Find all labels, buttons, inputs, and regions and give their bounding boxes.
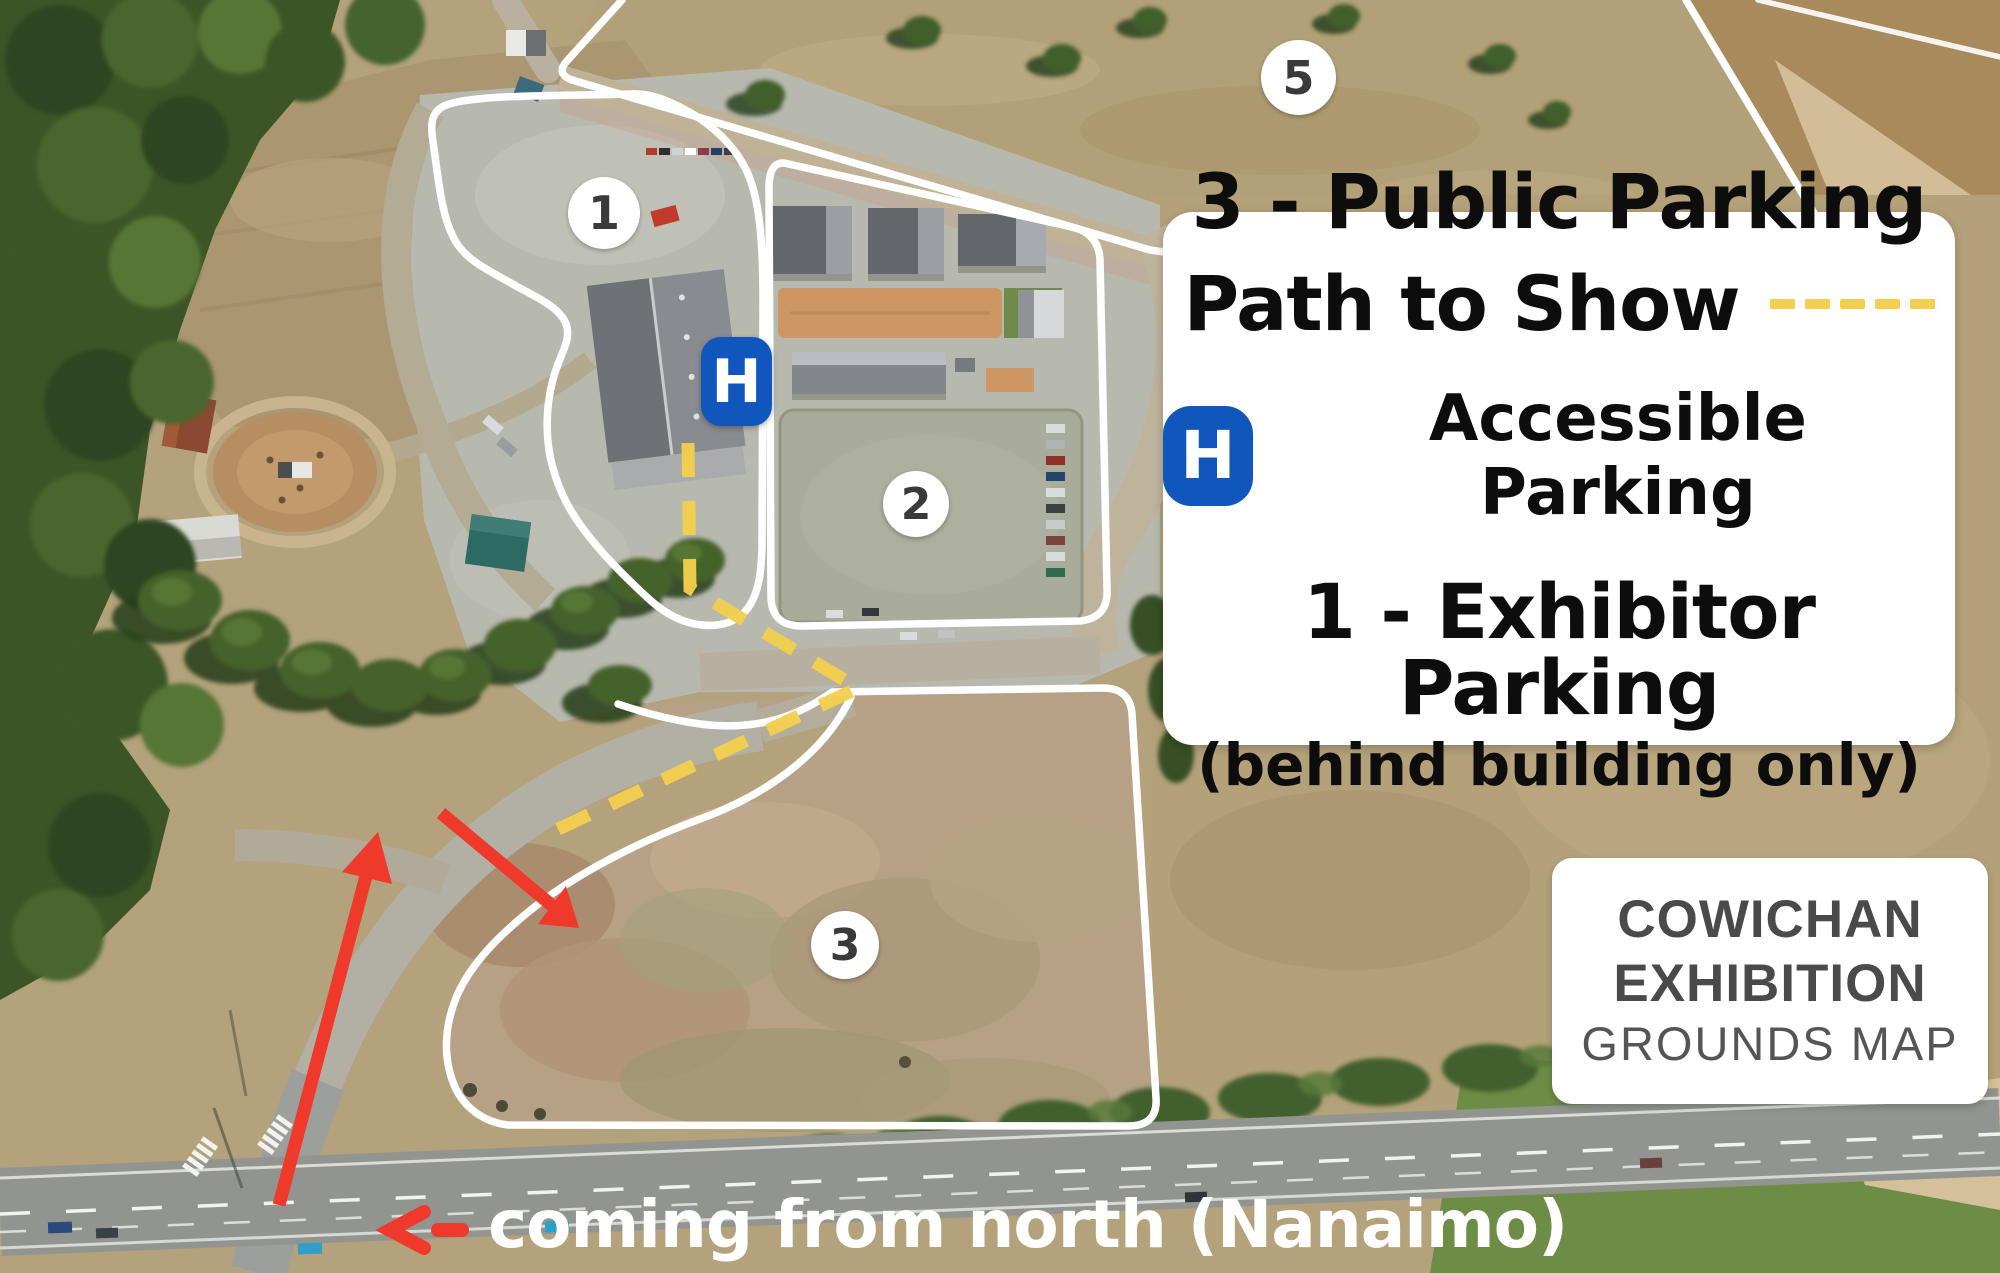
title-line-1: COWICHAN [1617,888,1922,952]
accessible-parking-marker: H [701,337,772,426]
title-card: COWICHAN EXHIBITION GROUNDS MAP [1552,858,1988,1104]
legend-path-to-show: Path to Show [1183,266,1739,342]
legend-public-parking: 3 - Public Parking [1192,164,1927,240]
legend-card: 3 - Public Parking Path to Show H Access… [1163,212,1955,745]
area-marker-2: 2 [883,471,949,537]
path-to-show-line [552,443,858,832]
accessible-parking-marker-letter: H [711,347,761,417]
legend-accessible-parking: Accessible Parking [1281,382,1955,530]
area-marker-5-label: 5 [1282,51,1314,105]
area-marker-3-label: 3 [830,920,861,971]
area-marker-3: 3 [811,911,879,979]
area-marker-1: 1 [568,177,640,249]
title-line-3: GROUNDS MAP [1581,1015,1958,1074]
bottom-caption: coming from north (Nanaimo) [372,1186,1567,1263]
area-marker-1-label: 1 [588,186,620,240]
title-line-2: EXHIBITION [1613,952,1926,1016]
legend-exhibitor-parking: 1 - Exhibitor Parking [1163,574,1955,726]
legend-exhibitor-parking-note: (behind building only) [1197,736,1921,794]
route-arrows [279,813,579,1205]
area-marker-5: 5 [1261,40,1336,115]
accessible-parking-icon: H [1163,406,1253,506]
area-marker-2-label: 2 [901,479,932,530]
path-dash-icon [1770,299,1935,309]
grounds-map-image: 1 2 3 5 H 3 - Public Parking Path to Sho… [0,0,2000,1273]
bottom-caption-text: coming from north (Nanaimo) [488,1186,1567,1263]
accessible-parking-icon-letter: H [1180,417,1235,494]
